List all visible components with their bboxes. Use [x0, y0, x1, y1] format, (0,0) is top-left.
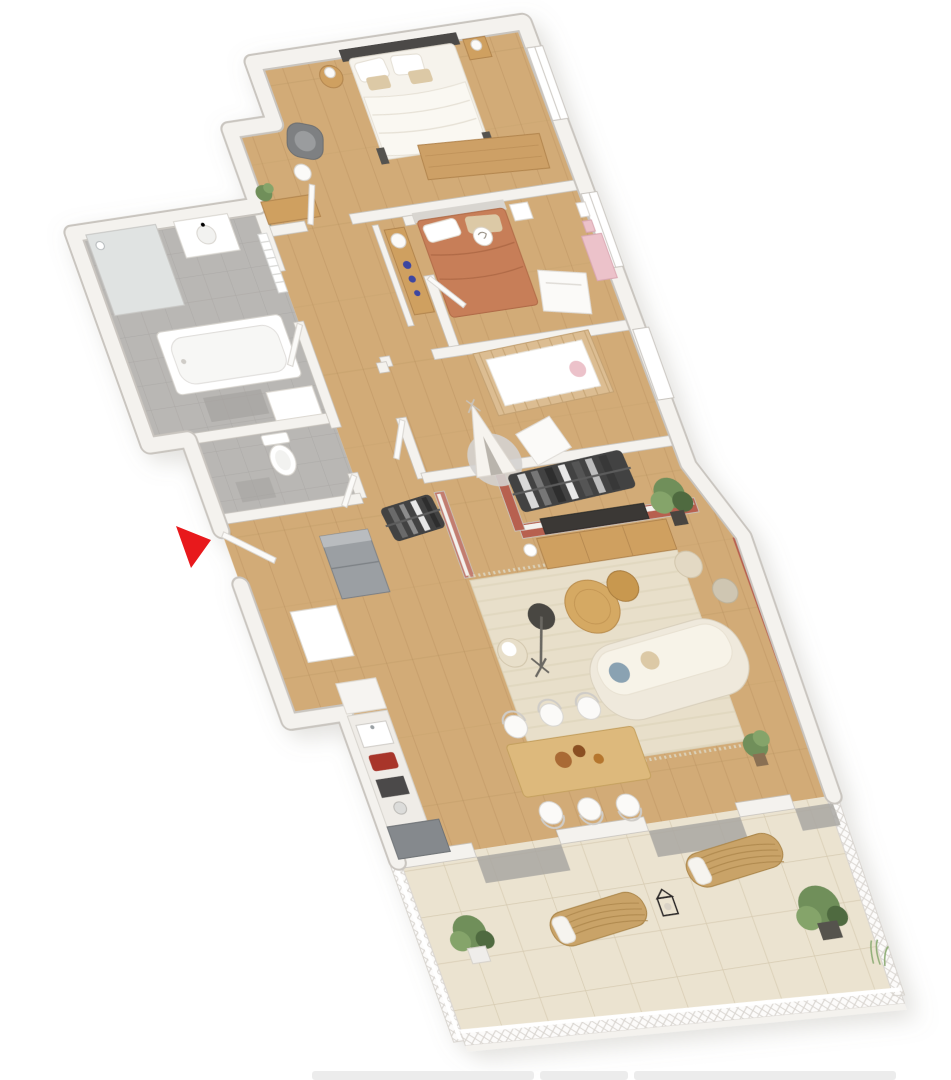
floor-plan-stage	[0, 0, 951, 1080]
white-desk-panel	[538, 270, 592, 314]
gallery-thumbnail-edge[interactable]	[540, 1071, 628, 1080]
door-leaf-master	[308, 184, 315, 225]
entrance-arrow	[176, 526, 211, 568]
gallery-thumbnail-edge[interactable]	[634, 1071, 896, 1080]
apartment-building	[24, 17, 914, 1080]
gallery-thumbnail-edge[interactable]	[312, 1071, 534, 1080]
vanity-cabinet	[266, 386, 322, 421]
floor-plan-3d-render	[0, 0, 951, 1080]
gallery-thumbnail-strip	[312, 1071, 896, 1080]
tall-dark-unit	[387, 819, 450, 859]
